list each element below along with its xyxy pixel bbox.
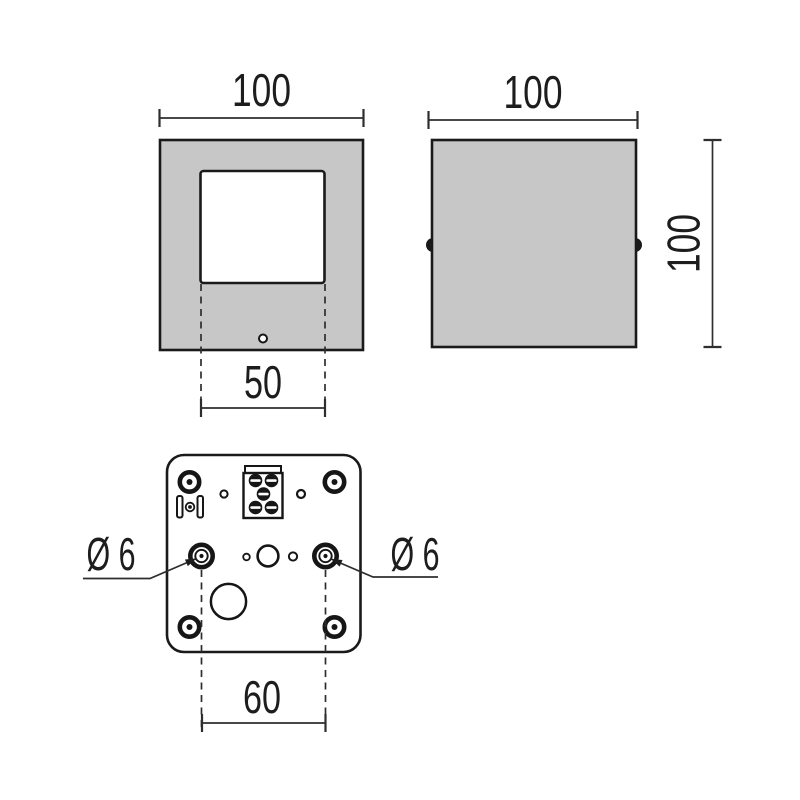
terminal-screw [257,487,271,501]
corner-screw [325,472,344,491]
side-width-dimension: 100 [429,66,638,129]
pilot-hole [220,490,227,497]
front-width-label: 100 [232,64,291,116]
corner-screw [325,617,344,636]
technical-drawing: 100 50 100 100 [0,0,800,800]
clamp-hole-center [188,505,192,509]
mounting-hole-right [314,545,336,567]
clamp-bar [198,496,204,518]
right-hole-diameter-label: Ø 6 [391,528,440,580]
screw-center [187,479,193,485]
screw-slot [266,506,276,509]
hole-center [199,554,203,558]
front-drain-hole [259,335,267,343]
terminal-screw [265,474,279,488]
corner-screw [180,617,199,636]
mounting-hole-left [190,545,212,567]
screw-center [187,624,193,630]
side-height-label: 100 [658,214,710,273]
side-width-label: 100 [504,66,563,118]
side-housing [432,140,636,347]
front-view [160,140,363,350]
pilot-hole [297,490,305,498]
screw-slot [258,493,268,496]
screw-center [332,479,338,485]
screw-slot [266,479,276,482]
pilot-hole [243,554,250,561]
terminal-screw [249,474,263,488]
front-width-dimension: 100 [160,64,364,127]
side-view [426,140,642,347]
left-hole-diameter-label: Ø 6 [87,528,136,580]
base-hole-spacing-label: 60 [243,671,281,723]
hole-center [323,554,327,558]
drawing-svg: 100 50 100 100 [0,0,800,800]
terminal-block [244,466,283,518]
center-hole [258,546,279,567]
screw-slot [250,506,260,509]
corner-screw [180,472,199,491]
side-height-dimension: 100 [658,140,722,347]
cable-entry-hole [211,584,246,619]
screw-slot [250,479,260,482]
base-view [167,455,361,652]
front-window-label: 50 [244,356,282,408]
terminal-screw [249,501,263,515]
terminal-screw [265,501,279,515]
pilot-hole [289,552,297,560]
screw-center [332,624,338,630]
clamp-bar [177,496,183,518]
front-light-window [201,171,325,283]
